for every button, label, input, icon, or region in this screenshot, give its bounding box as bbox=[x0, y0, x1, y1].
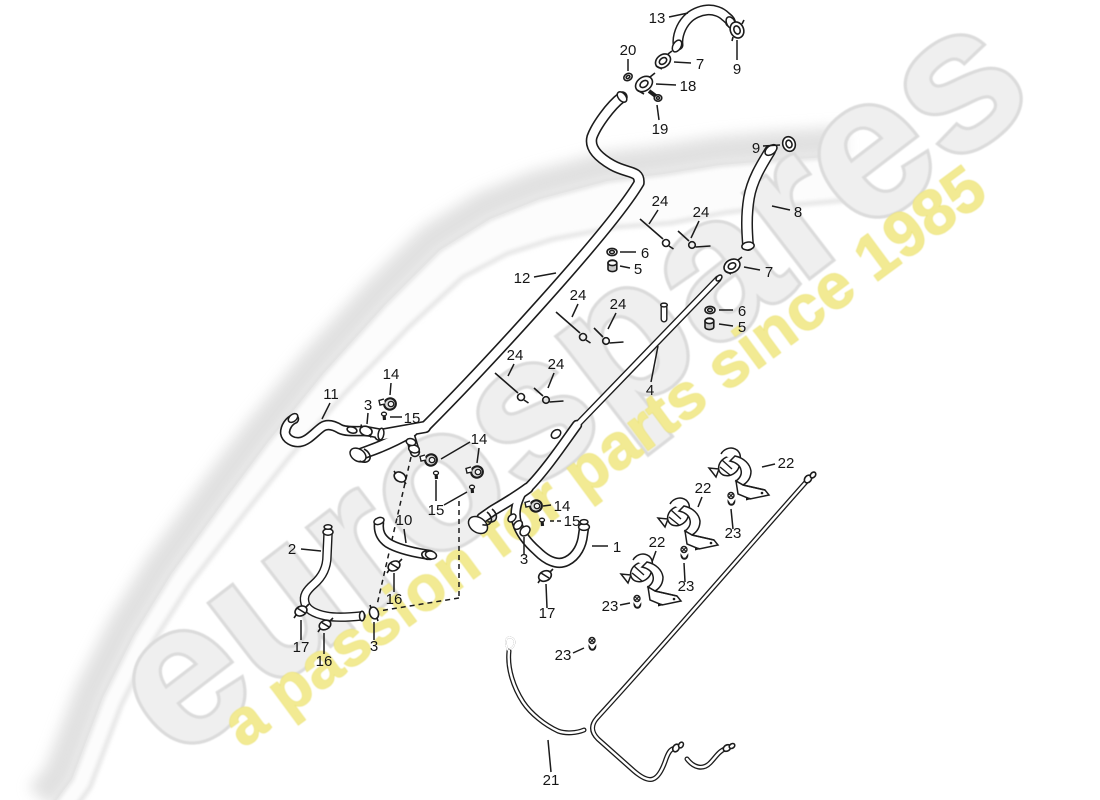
svg-text:15: 15 bbox=[564, 513, 581, 530]
svg-text:6: 6 bbox=[738, 303, 746, 320]
svg-text:24: 24 bbox=[693, 204, 710, 221]
svg-text:22: 22 bbox=[778, 455, 795, 472]
svg-text:16: 16 bbox=[386, 591, 403, 608]
svg-text:3: 3 bbox=[370, 638, 378, 655]
svg-text:5: 5 bbox=[634, 261, 642, 278]
svg-text:15: 15 bbox=[404, 410, 421, 427]
svg-text:9: 9 bbox=[752, 140, 760, 157]
svg-text:11: 11 bbox=[323, 386, 339, 403]
svg-text:15: 15 bbox=[428, 502, 445, 519]
svg-text:23: 23 bbox=[555, 647, 572, 664]
svg-text:24: 24 bbox=[570, 287, 587, 304]
svg-text:1: 1 bbox=[613, 539, 621, 556]
svg-text:21: 21 bbox=[543, 772, 560, 789]
svg-text:4: 4 bbox=[646, 382, 654, 399]
svg-text:3: 3 bbox=[364, 397, 372, 414]
svg-text:7: 7 bbox=[696, 56, 704, 73]
svg-text:23: 23 bbox=[678, 578, 695, 595]
svg-text:2: 2 bbox=[288, 541, 296, 558]
svg-text:22: 22 bbox=[649, 534, 666, 551]
svg-text:14: 14 bbox=[383, 366, 400, 383]
svg-text:10: 10 bbox=[396, 512, 413, 529]
svg-text:12: 12 bbox=[514, 270, 531, 287]
svg-text:8: 8 bbox=[794, 204, 802, 221]
svg-text:17: 17 bbox=[293, 639, 310, 656]
svg-text:9: 9 bbox=[733, 61, 741, 78]
svg-text:7: 7 bbox=[765, 264, 773, 281]
svg-text:24: 24 bbox=[610, 296, 627, 313]
svg-text:14: 14 bbox=[471, 431, 488, 448]
svg-text:23: 23 bbox=[602, 598, 619, 615]
svg-text:19: 19 bbox=[652, 121, 669, 138]
svg-text:16: 16 bbox=[316, 653, 333, 670]
svg-text:24: 24 bbox=[548, 356, 565, 373]
svg-text:18: 18 bbox=[680, 78, 697, 95]
svg-text:20: 20 bbox=[620, 42, 637, 59]
svg-text:6: 6 bbox=[641, 245, 649, 262]
svg-text:24: 24 bbox=[652, 193, 669, 210]
svg-text:24: 24 bbox=[507, 347, 524, 364]
svg-text:13: 13 bbox=[649, 10, 666, 27]
svg-text:22: 22 bbox=[695, 480, 712, 497]
svg-text:5: 5 bbox=[738, 319, 746, 336]
